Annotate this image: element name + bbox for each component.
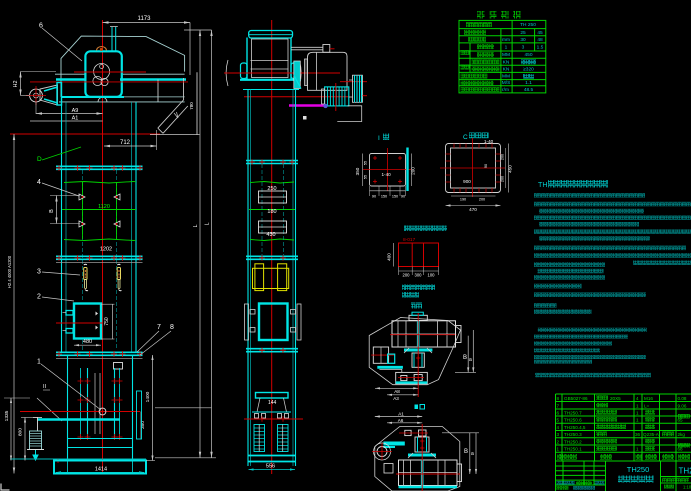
svg-text:1: 1 xyxy=(636,410,639,415)
svg-text:A1: A1 xyxy=(72,116,79,122)
svg-text:100: 100 xyxy=(428,273,436,278)
svg-text:TH250.1: TH250.1 xyxy=(564,447,582,452)
svg-text:H2: H2 xyxy=(13,80,19,87)
svg-text:90: 90 xyxy=(372,195,376,199)
svg-text:48.5: 48.5 xyxy=(524,87,534,93)
svg-text:1: 1 xyxy=(636,403,639,408)
svg-text:6: 6 xyxy=(557,410,560,415)
svg-text:9.06: 9.06 xyxy=(678,403,687,408)
svg-text:8-017: 8-017 xyxy=(403,237,416,243)
svg-text:L=: L= xyxy=(644,403,650,408)
svg-text:TH 250: TH 250 xyxy=(520,22,536,28)
svg-text:TH250: TH250 xyxy=(627,465,650,474)
svg-text:L: L xyxy=(193,224,199,227)
svg-text:3: 3 xyxy=(522,45,525,51)
svg-text:200: 200 xyxy=(403,273,411,278)
svg-text:KN: KN xyxy=(503,59,510,65)
svg-text:TH250.6: TH250.6 xyxy=(564,418,582,423)
svg-text:25: 25 xyxy=(520,30,526,36)
svg-text:I: I xyxy=(378,135,380,142)
svg-text:144: 144 xyxy=(268,400,277,406)
svg-text:D: D xyxy=(37,156,42,163)
svg-text:L: L xyxy=(205,222,211,225)
svg-text:A8: A8 xyxy=(394,389,400,394)
svg-text:1400: 1400 xyxy=(145,391,151,402)
svg-text:1: 1 xyxy=(557,447,560,452)
svg-text:780: 780 xyxy=(189,102,194,110)
svg-text:48: 48 xyxy=(537,37,543,43)
svg-text:800: 800 xyxy=(18,428,24,436)
svg-text:2: 2 xyxy=(557,439,560,444)
svg-text:mm: mm xyxy=(502,38,510,43)
svg-text:2kg: 2kg xyxy=(678,432,686,437)
svg-text:250: 250 xyxy=(267,186,276,192)
svg-text:350: 350 xyxy=(355,167,360,175)
svg-text:400: 400 xyxy=(387,253,392,261)
svg-text:TH: TH xyxy=(538,180,548,189)
svg-text:200: 200 xyxy=(501,176,505,182)
svg-text:900: 900 xyxy=(463,179,471,184)
svg-text:1.1: 1.1 xyxy=(525,80,532,86)
svg-text:150: 150 xyxy=(392,195,398,199)
svg-text:≥320: ≥320 xyxy=(523,66,534,72)
svg-text:1: 1 xyxy=(37,359,41,366)
svg-text:1335: 1335 xyxy=(4,410,10,421)
svg-text:1: 1 xyxy=(636,418,639,423)
svg-text:A1: A1 xyxy=(398,412,404,417)
svg-text:KN: KN xyxy=(503,66,510,72)
svg-text:470: 470 xyxy=(469,207,477,212)
svg-text:M16: M16 xyxy=(644,396,653,401)
svg-text:5: 5 xyxy=(557,418,560,423)
svg-text:4: 4 xyxy=(636,396,639,401)
svg-text:45: 45 xyxy=(537,30,543,36)
svg-text:556: 556 xyxy=(266,464,275,470)
svg-text:1:10: 1:10 xyxy=(683,485,691,490)
svg-text:Q235-A: Q235-A xyxy=(643,432,660,437)
svg-text:B: B xyxy=(463,355,467,361)
svg-text:2: 2 xyxy=(37,294,41,301)
svg-text:TH250.7: TH250.7 xyxy=(564,410,582,415)
svg-text:r/m: r/m xyxy=(502,87,509,93)
svg-text:A6: A6 xyxy=(398,418,404,423)
svg-text:1.5: 1.5 xyxy=(537,45,544,51)
svg-text:0.08: 0.08 xyxy=(678,396,687,401)
svg-text:90: 90 xyxy=(401,195,405,199)
svg-text:190: 190 xyxy=(460,198,466,202)
svg-text:90: 90 xyxy=(484,164,488,168)
svg-text:4: 4 xyxy=(37,179,41,186)
svg-text:200: 200 xyxy=(479,198,485,202)
svg-text:8: 8 xyxy=(170,324,174,331)
svg-text:30: 30 xyxy=(520,37,526,43)
svg-text:C: C xyxy=(463,134,468,141)
svg-text:750: 750 xyxy=(104,317,110,326)
svg-text:55: 55 xyxy=(364,161,368,165)
svg-text:180: 180 xyxy=(267,209,276,215)
svg-text:4: 4 xyxy=(557,425,560,430)
svg-text:36: 36 xyxy=(635,432,641,437)
svg-text:H2.4 4000 A1200: H2.4 4000 A1200 xyxy=(7,255,12,288)
svg-text:20X5: 20X5 xyxy=(610,396,621,401)
svg-text:55: 55 xyxy=(364,175,368,179)
svg-text:a: a xyxy=(469,357,472,363)
svg-text:1202: 1202 xyxy=(100,247,112,253)
svg-text:7: 7 xyxy=(557,403,560,408)
svg-text:8: 8 xyxy=(557,396,560,401)
svg-text:1: 1 xyxy=(636,447,639,452)
svg-text:200: 200 xyxy=(501,154,505,160)
svg-text:430: 430 xyxy=(266,232,275,238)
svg-text:M/S: M/S xyxy=(502,80,511,86)
svg-text:MM: MM xyxy=(502,52,510,58)
svg-text:150: 150 xyxy=(381,195,387,199)
svg-text:A3: A3 xyxy=(393,396,399,401)
svg-text:a: a xyxy=(471,451,474,457)
svg-text:300: 300 xyxy=(415,273,423,278)
svg-text:1173: 1173 xyxy=(138,16,152,22)
svg-text:7: 7 xyxy=(157,324,161,331)
svg-text:712: 712 xyxy=(120,140,131,146)
svg-text:3: 3 xyxy=(557,432,560,437)
svg-text:480: 480 xyxy=(83,339,92,345)
svg-text:450: 450 xyxy=(524,52,532,58)
svg-text:1414: 1414 xyxy=(95,467,107,473)
svg-text:TH250.2: TH250.2 xyxy=(564,439,582,444)
svg-text:1120: 1120 xyxy=(98,204,110,210)
svg-text:1: 1 xyxy=(505,45,508,51)
svg-text:TH250.3: TH250.3 xyxy=(564,432,582,437)
svg-text:1-40: 1-40 xyxy=(382,172,392,177)
svg-text:MM: MM xyxy=(502,74,510,80)
svg-text:TH2: TH2 xyxy=(678,467,691,476)
svg-text:A9: A9 xyxy=(72,108,79,114)
svg-text:3: 3 xyxy=(37,269,41,276)
svg-text:GB5027-86: GB5027-86 xyxy=(564,396,588,401)
svg-text:TH250.4,5: TH250.4,5 xyxy=(564,425,586,430)
svg-text:B: B xyxy=(464,449,468,455)
svg-text:B: B xyxy=(49,209,55,213)
svg-text:II: II xyxy=(43,384,47,390)
